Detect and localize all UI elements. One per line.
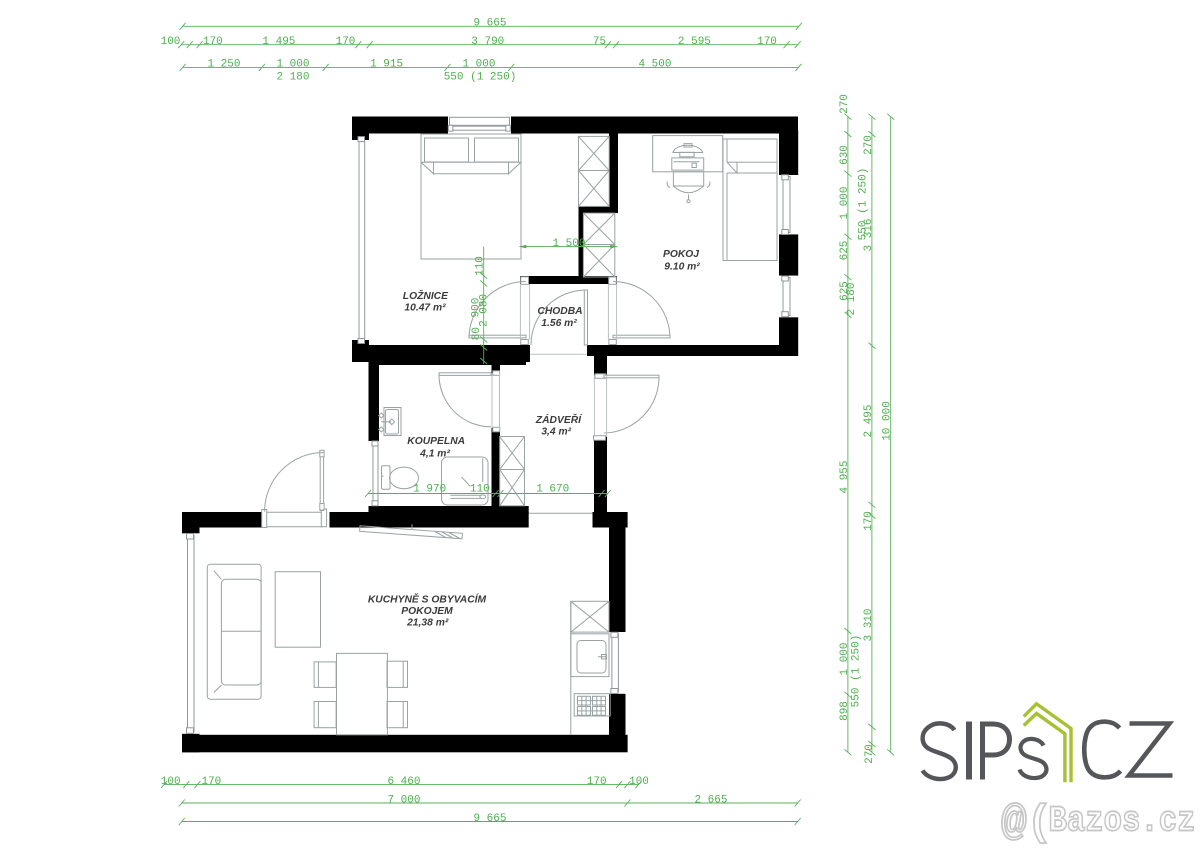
svg-text:2 595: 2 595 xyxy=(678,36,711,48)
svg-text:1 500: 1 500 xyxy=(552,238,585,250)
svg-text:630: 630 xyxy=(839,145,851,165)
svg-text:3 310: 3 310 xyxy=(863,608,875,641)
svg-text:KOUPELNA: KOUPELNA xyxy=(407,436,465,447)
svg-text:10 000: 10 000 xyxy=(882,401,894,441)
svg-text:3,4 m²: 3,4 m² xyxy=(541,427,571,438)
svg-text:Bazos.cz: Bazos.cz xyxy=(1048,801,1195,842)
svg-text:2 495: 2 495 xyxy=(863,404,875,437)
svg-text:CHODBA: CHODBA xyxy=(537,306,582,317)
svg-text:170: 170 xyxy=(587,776,607,788)
svg-text:170: 170 xyxy=(201,776,221,788)
svg-text:9.10 m²: 9.10 m² xyxy=(664,262,700,273)
svg-text:170: 170 xyxy=(757,36,777,48)
svg-text:80: 80 xyxy=(471,327,483,340)
svg-text:1 495: 1 495 xyxy=(262,36,295,48)
svg-text:21,38 m²: 21,38 m² xyxy=(406,618,449,629)
svg-text:550 (1 250): 550 (1 250) xyxy=(851,635,863,708)
svg-text:3 790: 3 790 xyxy=(471,36,504,48)
svg-text:9 665: 9 665 xyxy=(473,18,506,30)
svg-text:KUCHYNĚ S OBYVACÍM: KUCHYNĚ S OBYVACÍM xyxy=(368,593,487,606)
svg-text:2 665: 2 665 xyxy=(694,794,727,806)
svg-text:4,1 m²: 4,1 m² xyxy=(419,449,450,460)
svg-text:270: 270 xyxy=(839,94,851,114)
svg-text:ZÁDVEŘÍ: ZÁDVEŘÍ xyxy=(535,413,583,426)
svg-text:POKOJ: POKOJ xyxy=(663,249,699,260)
svg-text:898: 898 xyxy=(839,701,851,721)
svg-text:10.47 m²: 10.47 m² xyxy=(404,303,446,314)
svg-text:1 915: 1 915 xyxy=(370,59,403,71)
svg-text:1 250: 1 250 xyxy=(207,59,240,71)
svg-text:170: 170 xyxy=(203,36,223,48)
svg-text:170: 170 xyxy=(336,36,356,48)
svg-text:1 000: 1 000 xyxy=(462,59,495,71)
svg-text:1 670: 1 670 xyxy=(536,484,569,496)
svg-text:1 000: 1 000 xyxy=(839,642,851,675)
svg-text:7 000: 7 000 xyxy=(387,794,420,806)
svg-text:3 316: 3 316 xyxy=(863,218,875,251)
svg-text:100: 100 xyxy=(161,36,181,48)
svg-text:170: 170 xyxy=(863,511,875,531)
svg-text:110: 110 xyxy=(475,256,487,276)
svg-text:4 955: 4 955 xyxy=(839,460,851,493)
svg-text:2 180: 2 180 xyxy=(846,282,858,315)
svg-text:LOŽNICE: LOŽNICE xyxy=(403,289,449,302)
svg-text:270: 270 xyxy=(863,135,875,155)
svg-text:POKOJEM: POKOJEM xyxy=(401,606,453,617)
svg-text:100: 100 xyxy=(629,776,649,788)
svg-text:110: 110 xyxy=(470,484,490,496)
svg-text:1 000: 1 000 xyxy=(276,59,309,71)
svg-text:1 000: 1 000 xyxy=(839,186,851,219)
svg-text:1 970: 1 970 xyxy=(413,484,446,496)
svg-text:2 080: 2 080 xyxy=(478,294,490,327)
svg-text:270: 270 xyxy=(864,744,876,764)
svg-text:75: 75 xyxy=(593,36,606,48)
svg-text:550 (1 250): 550 (1 250) xyxy=(444,72,517,84)
svg-text:100: 100 xyxy=(161,776,181,788)
svg-text:9 665: 9 665 xyxy=(473,813,506,825)
svg-text:625: 625 xyxy=(839,241,851,261)
svg-text:2 180: 2 180 xyxy=(276,72,309,84)
svg-text:1.56 m²: 1.56 m² xyxy=(541,318,577,329)
svg-text:6 460: 6 460 xyxy=(387,776,420,788)
svg-text:4 500: 4 500 xyxy=(638,59,671,71)
svg-text:@(: @( xyxy=(1001,798,1053,847)
